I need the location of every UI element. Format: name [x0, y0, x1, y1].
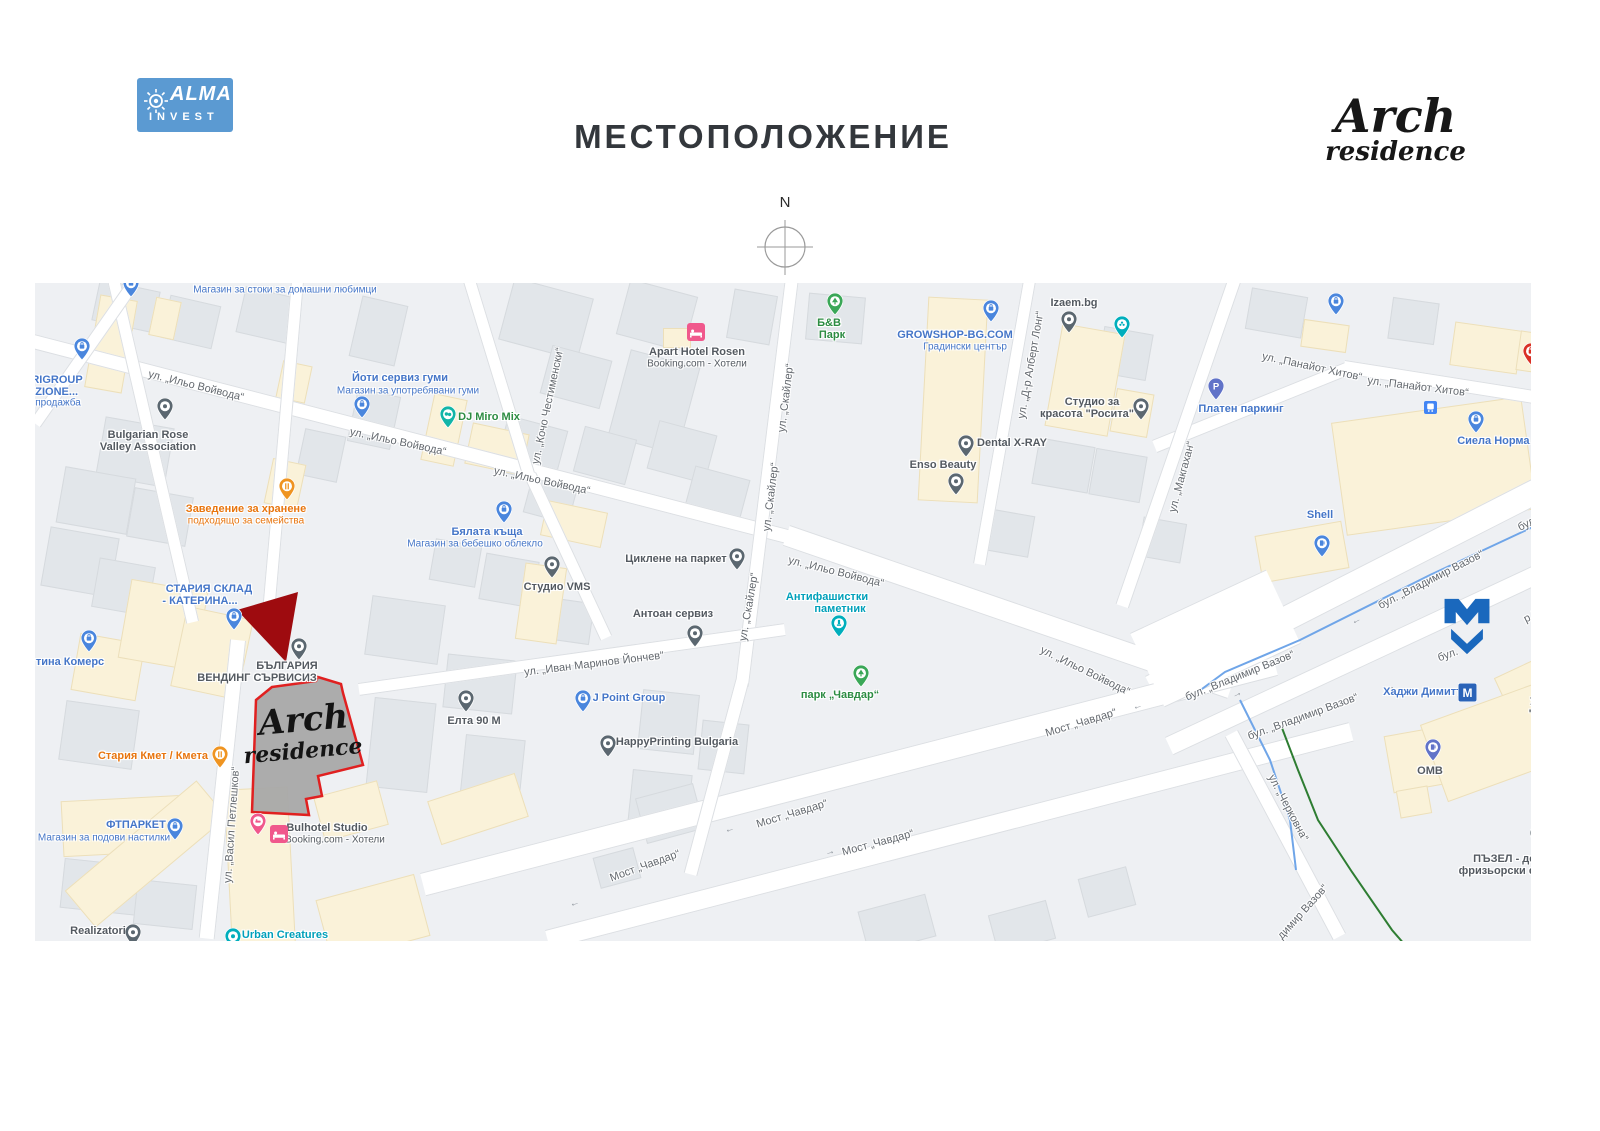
svg-text:P: P [1213, 382, 1220, 393]
poi-pin-bag-icon [496, 501, 512, 523]
poi-pin-fuel-icon [1314, 535, 1330, 557]
poi-label-bialata-kashta: Бялата къща [451, 526, 522, 538]
poi-pin-bed-icon [250, 813, 266, 835]
page-title: МЕСТОПОЛОЖЕНИЕ [563, 118, 963, 156]
poi-label-growshop: GROWSHOP-BG.COM [897, 329, 1013, 341]
poi-pin-dot-icon [1061, 311, 1077, 333]
poi-pin-bag-icon [81, 630, 97, 652]
logo-text-invest: INVEST [149, 111, 219, 123]
poi-label-stariya-sklad: - КАТЕРИНА... [162, 595, 237, 607]
poi-label-studio-rosita: красота "Росита" [1040, 408, 1134, 420]
poi-pin-bag-icon [74, 338, 90, 360]
page: { "header": { "logo_line1": "ALMA", "log… [0, 0, 1600, 1131]
poi-label-enso-beauty: Enso Beauty [910, 459, 977, 471]
poi-label-stariya-kmet: Стария Кмет / Кмета [98, 750, 208, 762]
poi-square-bed-icon [270, 825, 288, 843]
poi-label-j-point-group: J Point Group [593, 692, 666, 704]
poi-square-m-icon: M [1458, 683, 1477, 702]
poi-label-siela-norma: Сиела Норма АД [1457, 435, 1531, 447]
poi-label-rigroup: EZIONE... [35, 386, 78, 398]
poi-label-pet-shop-top: Магазин за стоки за домашни любимци [193, 285, 377, 296]
poi-pin-dot-icon [1530, 825, 1531, 847]
poi-label-studio-vms: Студио VMS [524, 581, 591, 593]
poi-pin-fork-icon [279, 478, 295, 500]
poi-label-bv-park: Парк [819, 329, 845, 341]
arch-residence-logo: Arch residence [1308, 92, 1483, 166]
poi-pin-bag-icon [226, 608, 242, 630]
poi-label-tina-komers: тина Комерс [36, 656, 104, 668]
poi-label-studio-rosita: Студио за [1065, 396, 1119, 408]
poi-label-realizatori: Realizatori [70, 925, 126, 937]
poi-pin-masks-icon [440, 406, 456, 428]
poi-pin-tree-icon [827, 293, 843, 315]
poi-pin-bag-icon [1523, 343, 1531, 365]
svg-text:M: M [1463, 686, 1473, 700]
poi-label-apart-hotel-rosen: Booking.com - Хотели [647, 359, 747, 370]
poi-label-bulgarian-rose-valley: Bulgarian Rose [108, 429, 189, 441]
poi-pin-dot-icon [544, 556, 560, 578]
poi-pin-tree-icon [853, 665, 869, 687]
brand-residence: residence [1308, 138, 1483, 166]
poi-label-happyprinting: HappyPrinting Bulgaria [616, 736, 738, 748]
poi-label-bulhotel-studio: Booking.com - Хотели [285, 835, 385, 846]
poi-pin-bag-icon [167, 818, 183, 840]
poi-label-ftparket: ФТПАРКЕТ [106, 819, 166, 831]
poi-label-bg-vending: БЪЛГАРИЯ [256, 660, 317, 672]
poi-pin-monument-icon [831, 615, 847, 637]
poi-pin-dot-icon [958, 435, 974, 457]
poi-square-transit-icon [1424, 401, 1437, 414]
poi-label-ucheben: Учеб [1530, 696, 1531, 708]
poi-pin-dot-icon [225, 928, 241, 941]
poi-label-ftparket: Магазин за подови настилки [38, 833, 170, 844]
compass-rose: N [753, 192, 817, 289]
poi-pin-bag-icon [575, 690, 591, 712]
poi-pin-dot-icon [687, 625, 703, 647]
poi-label-antifa-monument: Антифашистки [786, 591, 868, 603]
poi-label-growshop: Градински център [923, 342, 1007, 353]
poi-label-puzel-salon: ПЪЗЕЛ - детски [1473, 853, 1531, 865]
poi-label-antifa-monument: паметник [814, 603, 865, 615]
poi-square-bed-icon [687, 323, 705, 341]
poi-label-park-chavdar: парк „Чавдар“ [801, 689, 879, 701]
poi-pin-dot-icon [125, 924, 141, 941]
poi-pin-fork-icon [212, 746, 228, 768]
poi-label-platen-parking: Платен паркинг [1198, 403, 1283, 415]
poi-pin-bag-icon [354, 396, 370, 418]
poi-label-rigroup: RIGROUP [35, 374, 83, 386]
poi-label-puzel-salon: фризьорски салон [1459, 865, 1531, 877]
poi-pin-dot-icon [157, 398, 173, 420]
poi-label-omv: OMB [1417, 765, 1443, 777]
poi-label-bg-vending: ВЕНДИНГ СЪРВИСИЗ [197, 672, 317, 684]
poi-label-bulgarian-rose-valley: Valley Association [100, 441, 196, 453]
poi-label-elta-90m: Елта 90 М [447, 715, 500, 727]
logo-text-alma: ALMA [170, 83, 232, 106]
poi-pin-bag-icon [1468, 411, 1484, 433]
poi-pin-dot-icon [291, 638, 307, 660]
poi-pin-dot-icon [1133, 398, 1149, 420]
metro-logo [1443, 598, 1491, 656]
poi-label-antoan-service: Антоан сервиз [633, 608, 713, 620]
poi-label-dj-miro-mix: DJ Miro Mix [458, 411, 520, 423]
site-pointer-arrow [237, 592, 298, 662]
poi-label-yoti-service: Йоти сервиз гуми [352, 372, 448, 384]
poi-label-shell: Shell [1307, 509, 1333, 521]
poi-pin-dot-icon [458, 690, 474, 712]
location-map: Arch residence ул. „Ильо Войвода“ул. „Ил… [35, 283, 1531, 941]
poi-label-yoti-service: Магазин за употребявани гуми [337, 386, 479, 397]
poi-label-bialata-kashta: Магазин за бебешко облекло [407, 539, 543, 550]
poi-label-dental-xray: Dental X-RAY [977, 437, 1047, 449]
poi-pin-bag-icon [1328, 293, 1344, 315]
poi-label-bv-park: Б&В [817, 317, 841, 329]
poi-pin-fuel-icon [1425, 739, 1441, 761]
poi-label-bulhotel-studio: Bulhotel Studio [286, 822, 367, 834]
poi-pin-dot-icon [600, 735, 616, 757]
poi-pin-bag-icon [983, 300, 999, 322]
poi-label-rigroup: продажба [35, 398, 81, 409]
poi-pin-dot-icon [948, 473, 964, 495]
poi-label-ucheben: 'Сто [1529, 708, 1531, 720]
poi-label-urban-creatures: Urban Creatures [242, 929, 328, 941]
poi-pin-p-icon: P [1208, 378, 1224, 400]
poi-label-zavedenie-hranene: Заведение за хранене [186, 503, 306, 515]
poi-label-stariya-sklad: СТАРИЯ СКЛАД [166, 583, 252, 595]
poi-label-zavedenie-hranene: подходящо за семейства [188, 516, 304, 527]
alma-invest-logo: ALMA INVEST [137, 78, 233, 132]
poi-label-apart-hotel-rosen: Apart Hotel Rosen [649, 346, 745, 358]
poi-pin-bag-icon [123, 283, 139, 297]
poi-pin-flower-icon [1114, 316, 1130, 338]
poi-pin-dot-icon [729, 548, 745, 570]
poi-label-tsiklene-parket: Циклене на паркет [625, 553, 726, 565]
poi-label-izaem: Izaem.bg [1050, 297, 1097, 309]
brand-arch: Arch [1308, 92, 1483, 140]
compass-n-label: N [780, 194, 791, 211]
